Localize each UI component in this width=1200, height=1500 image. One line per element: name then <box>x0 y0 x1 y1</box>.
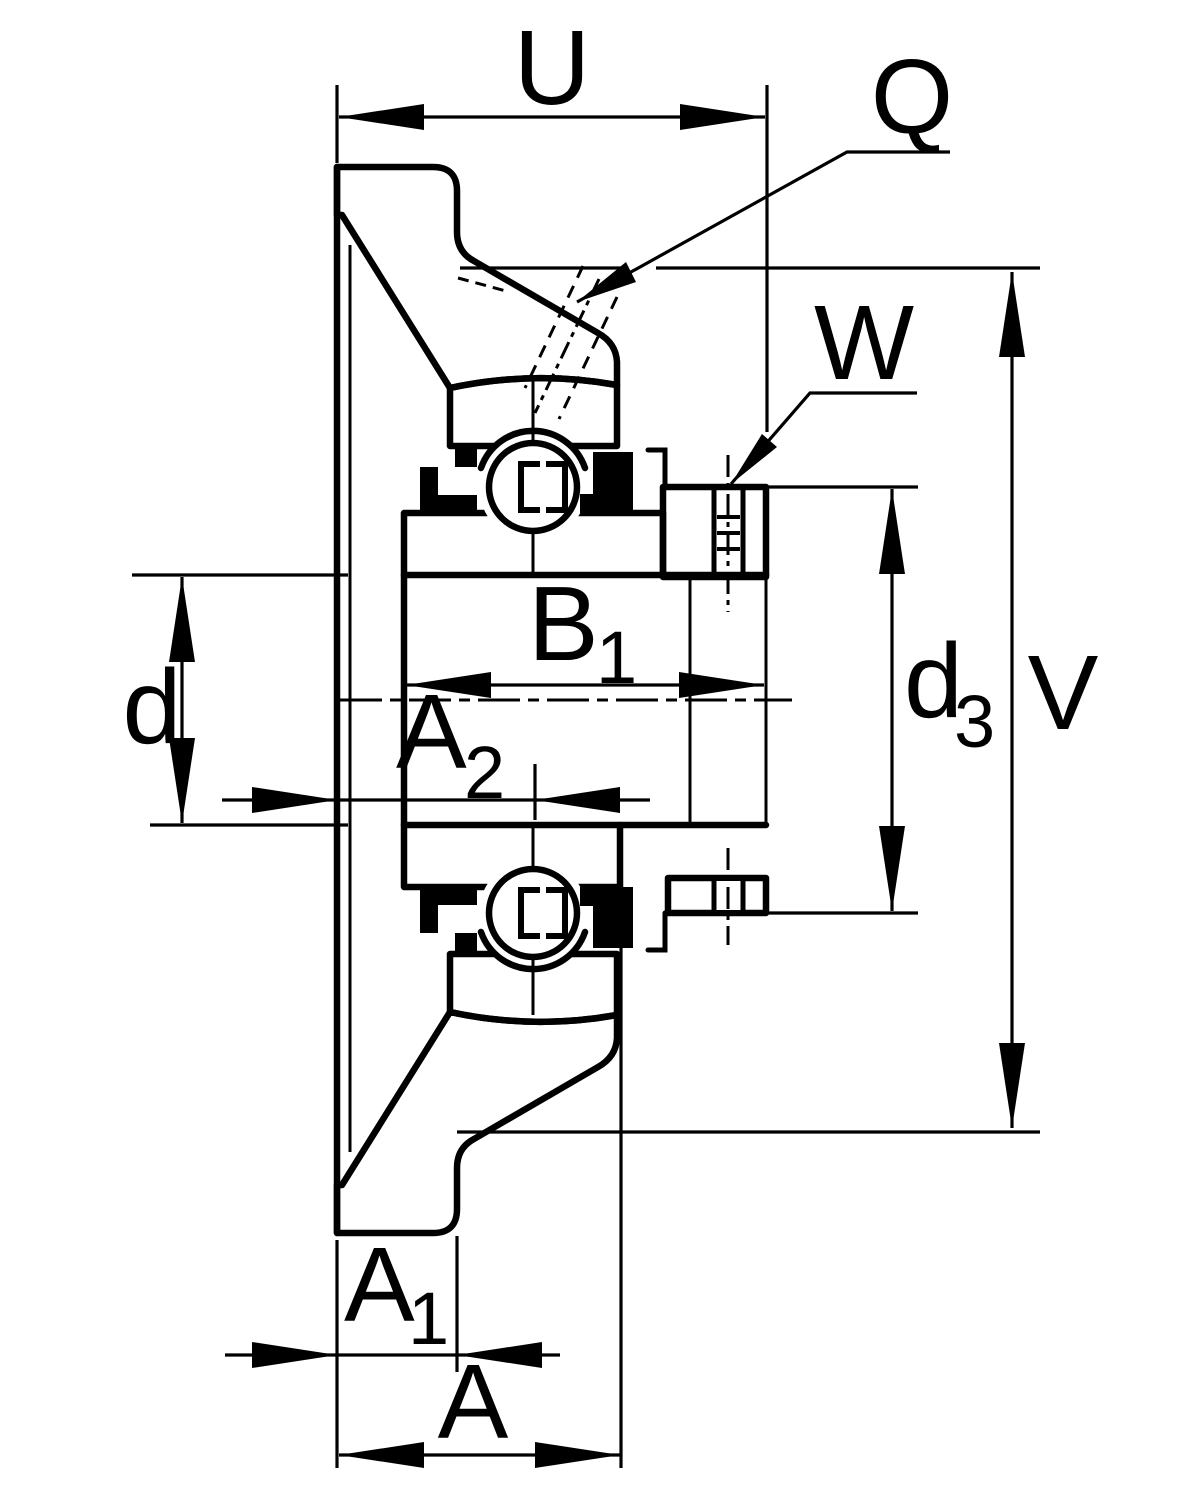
label-b1: B <box>528 565 599 683</box>
label-v: V <box>1028 634 1099 752</box>
label-q: Q <box>871 38 953 156</box>
drawing-canvas: U Q W V d 3 d <box>0 0 1200 1500</box>
label-w: W <box>814 284 914 402</box>
label-d3-sub: 3 <box>954 680 995 763</box>
label-a2-sub: 2 <box>464 731 505 814</box>
label-b1-sub: 1 <box>596 616 637 699</box>
label-a: A <box>438 1343 509 1461</box>
seal-nub-upper-left <box>455 446 477 467</box>
seal-nub-lower-left <box>455 933 477 954</box>
label-u: U <box>514 9 591 127</box>
label-d: d <box>123 648 182 766</box>
flanged-bearing-unit-drawing: U Q W V d 3 d <box>0 0 1200 1500</box>
label-a2: A <box>396 673 467 791</box>
label-a1: A <box>344 1226 415 1344</box>
